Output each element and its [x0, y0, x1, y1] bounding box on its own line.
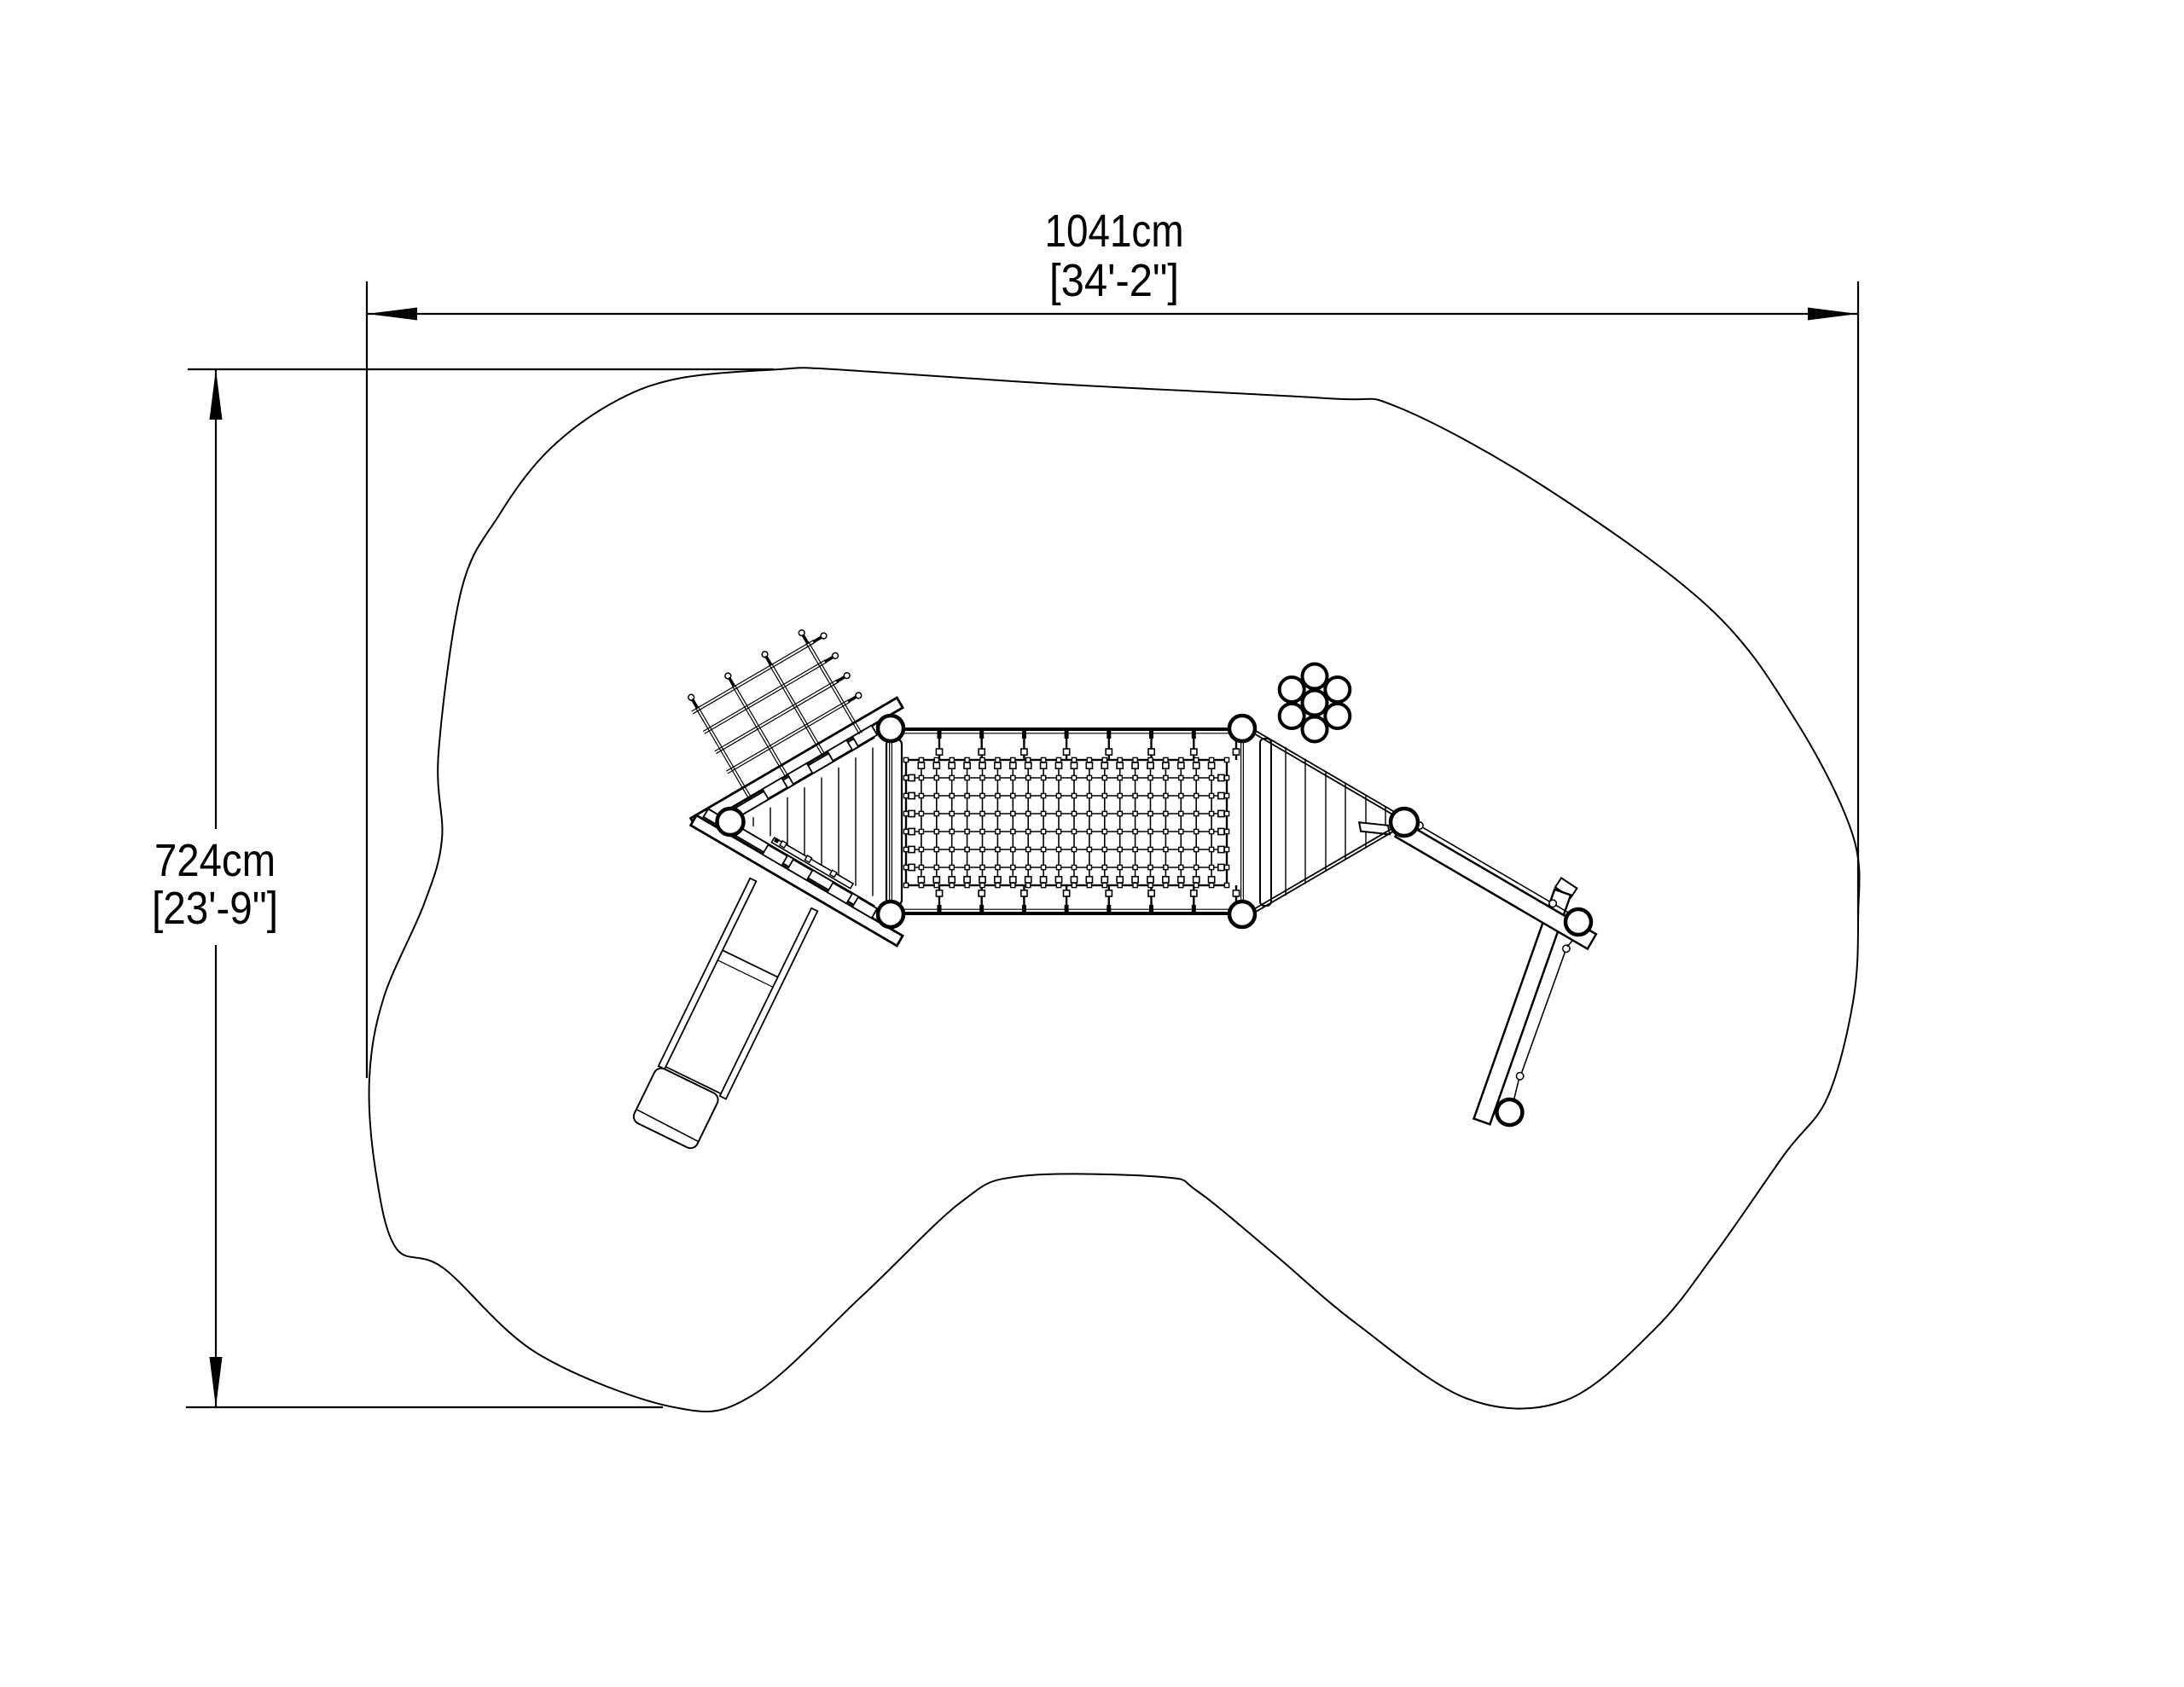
svg-text:[23'-9"]: [23'-9"] [152, 883, 278, 934]
svg-text:[34'-2"]: [34'-2"] [1049, 255, 1179, 306]
svg-text:724cm: 724cm [154, 835, 276, 886]
svg-text:1041cm: 1041cm [1045, 206, 1184, 257]
